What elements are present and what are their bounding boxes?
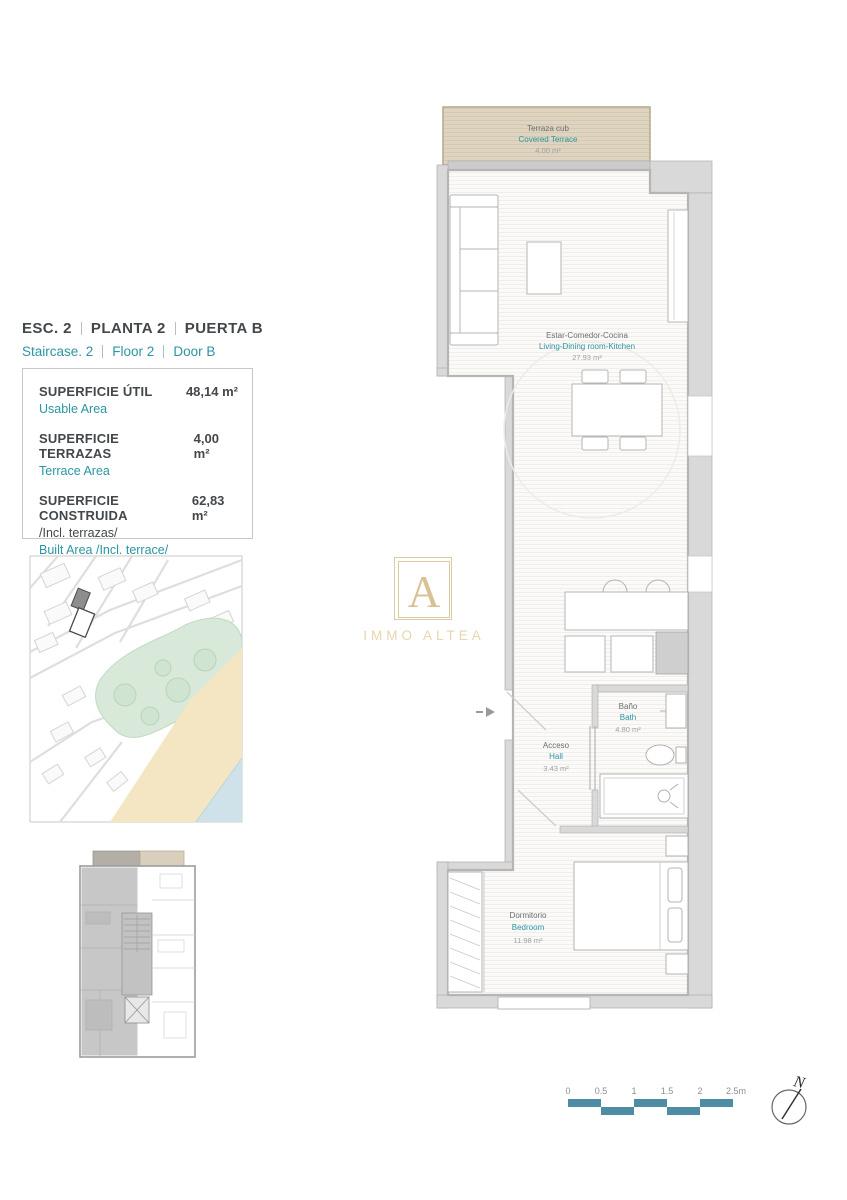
room-label-hall-area: 3.43 m² [543, 764, 569, 773]
unit-header: ESC. 2PLANTA 2PUERTA B Staircase. 2Floor… [22, 320, 263, 359]
separator [175, 322, 176, 335]
scale-tick-3: 1.5 [661, 1086, 674, 1096]
window-right-1 [688, 396, 712, 456]
terrace-area-label-en: Terrace Area [39, 464, 238, 478]
room-label-living-en: Living-Dining room-Kitchen [539, 342, 635, 351]
header-en-door: Door B [173, 344, 215, 359]
keyplan-terrace-right [140, 851, 184, 867]
terrace-area-value: 4,00 m² [194, 431, 238, 461]
scale-tick-2: 1 [631, 1086, 636, 1096]
scale-bar: 0 0.5 1 1.5 2 2.5m [565, 1086, 746, 1115]
agency-logo-letter: A [408, 570, 441, 615]
key-plan [80, 851, 195, 1057]
room-label-terrace-en: Covered Terrace [519, 135, 579, 144]
room-label-terrace-area: 4.00 m² [535, 146, 561, 155]
header-en-staircase: Staircase. 2 [22, 344, 93, 359]
surface-areas-box: SUPERFICIE ÚTIL 48,14 m² Usable Area SUP… [22, 368, 253, 539]
room-label-bath-area: 4.80 m² [615, 725, 641, 734]
agency-logo-frame: A [398, 561, 450, 618]
separator [81, 322, 82, 335]
usable-area-value: 48,14 m² [186, 384, 238, 399]
unit-header-es: ESC. 2PLANTA 2PUERTA B [22, 320, 263, 337]
area-row-terrace: SUPERFICIE TERRAZAS 4,00 m² Terrace Area [39, 431, 238, 478]
keyplan-stair-core [122, 913, 152, 1023]
window-right-2 [688, 556, 712, 592]
header-en-floor: Floor 2 [112, 344, 154, 359]
scale-tick-4: 2 [697, 1086, 702, 1096]
wardrobe [448, 872, 484, 992]
header-es-esc: ESC. 2 [22, 320, 72, 337]
usable-area-label-en: Usable Area [39, 402, 238, 416]
built-area-label-es: SUPERFICIE CONSTRUIDA [39, 493, 192, 523]
covered-terrace: Terraza cub Covered Terrace 4.00 m² [443, 107, 650, 170]
keyplan-terrace-left [93, 851, 140, 867]
agency-logo: A [394, 557, 452, 620]
sofa [450, 195, 498, 345]
area-row-built: SUPERFICIE CONSTRUIDA 62,83 m² /Incl. te… [39, 493, 238, 557]
room-label-bedroom-area: 11.98 m² [513, 936, 543, 945]
north-arrow-icon: N [772, 1073, 808, 1124]
room-label-hall-es: Acceso [543, 741, 570, 750]
scale-tick-0: 0 [565, 1086, 570, 1096]
built-area-label-es2: /Incl. terrazas/ [39, 526, 238, 540]
room-label-bath-en: Bath [620, 713, 636, 722]
room-label-bath-es: Baño [619, 702, 638, 711]
entry-arrow-icon [476, 707, 495, 717]
coffee-table [527, 242, 561, 294]
main-floorplan: Terraza cub Covered Terrace 4.00 m² [437, 107, 712, 1009]
room-label-bedroom-es: Dormitorio [510, 911, 547, 920]
room-label-living-area: 27.93 m² [572, 353, 602, 362]
terrace-area-label-es: SUPERFICIE TERRAZAS [39, 431, 194, 461]
room-label-hall-en: Hall [549, 752, 563, 761]
usable-area-label-es: SUPERFICIE ÚTIL [39, 384, 153, 399]
room-label-bedroom-en: Bedroom [512, 923, 545, 932]
agency-name: IMMO ALTEA [340, 628, 508, 643]
unit-header-en: Staircase. 2Floor 2Door B [22, 344, 263, 359]
scale-tick-1: 0.5 [595, 1086, 608, 1096]
separator [163, 345, 164, 358]
bedroom-window-sill [498, 997, 590, 1009]
scale-tick-5: 2.5m [726, 1086, 746, 1096]
floorplan-sheet: Terraza cub Covered Terrace 4.00 m² [0, 0, 847, 1200]
room-label-living-es: Estar-Comedor-Cocina [546, 331, 628, 340]
site-map [30, 556, 242, 822]
built-area-label-en: Built Area /Incl. terrace/ [39, 543, 238, 557]
scale-bar-segments [568, 1099, 733, 1115]
header-es-planta: PLANTA 2 [91, 320, 166, 337]
area-row-usable: SUPERFICIE ÚTIL 48,14 m² Usable Area [39, 384, 238, 416]
north-label: N [791, 1073, 808, 1093]
utility-shaft [656, 632, 688, 674]
room-label-terrace-es: Terraza cub [527, 124, 569, 133]
built-area-value: 62,83 m² [192, 493, 238, 523]
separator [102, 345, 103, 358]
tall-window [668, 210, 688, 322]
header-es-puerta: PUERTA B [185, 320, 263, 337]
